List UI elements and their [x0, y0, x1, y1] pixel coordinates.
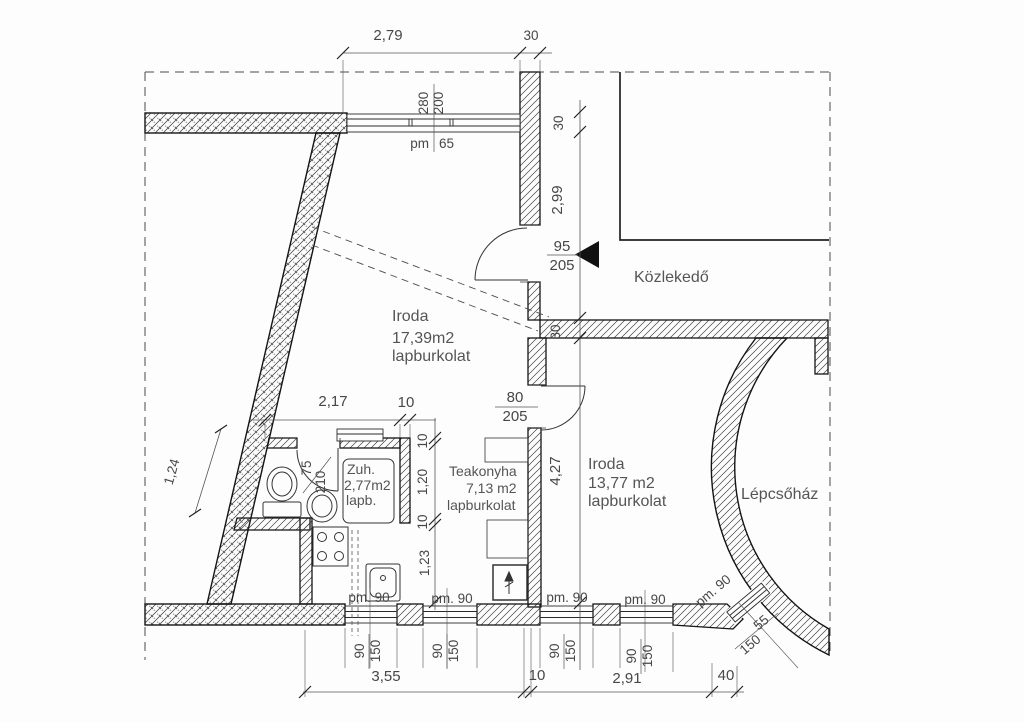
room-iroda1-area: 17,39m2: [392, 330, 454, 347]
room-zuh-area: 2,77m2: [344, 477, 391, 493]
dim-door2-h: 205: [502, 408, 527, 425]
dim-bath-width: 2,17: [318, 393, 347, 410]
dim-wintop-sill: 65: [439, 136, 454, 151]
dim-wintop-w: 280: [416, 92, 431, 115]
window-c: [540, 606, 593, 623]
room-label-iroda1: Iroda 17,39m2 lapburkolat: [392, 308, 471, 365]
dim-chain-123: 1,23: [417, 550, 432, 576]
dim-bottom-291: 2,91: [612, 670, 641, 687]
window-a: [345, 606, 397, 623]
dim-chain-10a: 10: [415, 433, 430, 448]
dim-bath-wall: 10: [398, 394, 415, 411]
window-d: [620, 606, 673, 623]
floorplan-drawing: 2,79 30 280 200 pm 65 30 2,99 95 205 30 …: [0, 0, 1024, 723]
stove: [313, 527, 348, 566]
corridor-opening-outline: [620, 72, 829, 240]
dim-right-wall-top: 30: [551, 115, 566, 130]
room-iroda2-floor: lapburkolat: [588, 493, 667, 510]
dim-wind-w: 90: [624, 648, 639, 663]
wall-corridor-return: [815, 338, 828, 374]
dim-winb-w: 90: [430, 643, 445, 658]
room-teakonyha-floor: lapburkolat: [447, 497, 516, 513]
dim-right-len2: 4,27: [547, 456, 564, 485]
dim-bottom-10: 10: [529, 667, 546, 684]
window-bath-small: [337, 429, 383, 441]
dim-bathdoor-w: 75: [299, 460, 314, 475]
wall-iroda2-lower: [528, 428, 541, 607]
room-label-lepcsohaz: Lépcsőház: [741, 486, 818, 503]
room-label-teakonyha: Teakonyha 7,13 m2 lapburkolat: [447, 463, 517, 513]
dim-wind-h: 150: [640, 645, 655, 668]
wall-pier-c: [477, 604, 540, 625]
wall-bath-partition: [400, 438, 410, 523]
dim-wine-w: 55: [751, 612, 772, 633]
dim-winc-w: 90: [547, 643, 562, 658]
wall-bottom-left: [145, 604, 345, 625]
room-label-iroda2: Iroda 13,77 m2 lapburkolat: [588, 456, 667, 510]
door-iroda2: [528, 385, 585, 430]
wall-right-below-door: [528, 282, 540, 320]
dim-top-wall: 30: [523, 28, 538, 43]
room-label-zuhanyzo: Zuh. 2,77m2 lapb.: [344, 461, 391, 508]
wall-bath-top-left: [267, 438, 297, 448]
dim-wina-h: 150: [368, 640, 383, 663]
shaft-box-arrow: [493, 565, 527, 600]
room-iroda2-name: Iroda: [588, 456, 625, 473]
room-label-kozlekedo: Közlekedő: [634, 269, 709, 286]
dim-right-wall-mid: 30: [548, 324, 563, 339]
boundary-dashed-lines: [145, 72, 830, 660]
dim-winc-pm: pm. 90: [546, 590, 587, 605]
dim-wind-pm: pm. 90: [624, 592, 665, 607]
wall-pier-b: [397, 604, 423, 625]
dim-right-len: 2,99: [549, 185, 566, 214]
room-zuh-floor: lapb.: [346, 492, 376, 508]
room-teakonyha-area: 7,13 m2: [466, 480, 517, 496]
dim-bathdoor-h: 210: [313, 471, 328, 494]
wall-bath-bottom: [234, 518, 310, 530]
dim-chain-10b: 10: [415, 514, 430, 529]
counter-top: [485, 438, 528, 462]
dim-top-width: 2,79: [373, 27, 402, 44]
dim-wina-w: 90: [352, 643, 367, 658]
window-top: [347, 114, 520, 132]
entrance-arrow-icon: [575, 241, 599, 268]
wall-right-top: [520, 72, 540, 225]
dim-entry-h: 205: [549, 257, 574, 274]
dim-winc-h: 150: [563, 640, 578, 663]
walls-existing: [145, 113, 347, 625]
wall-top: [145, 113, 347, 133]
room-teakonyha-name: Teakonyha: [449, 463, 517, 479]
wall-pier-d: [593, 604, 620, 625]
room-iroda1-name: Iroda: [392, 308, 429, 325]
bath-sink: [307, 490, 337, 522]
dim-entry-w: 95: [554, 238, 571, 255]
entry-door: [475, 225, 540, 282]
dim-wina-pm: pm. 90: [348, 590, 389, 605]
wall-iroda2-upper: [528, 338, 546, 385]
duct-dashed: [352, 530, 358, 636]
dim-wintop-pm: pm: [410, 136, 429, 151]
toilet: [263, 467, 301, 517]
beam-dashed-lines: [312, 227, 549, 331]
dim-bottom-355: 3,55: [371, 668, 400, 685]
dim-winb-pm: pm. 90: [431, 591, 472, 606]
room-iroda2-area: 13,77 m2: [588, 475, 655, 492]
dim-wintop-h: 200: [431, 92, 446, 115]
dim-door2-w: 80: [507, 389, 524, 406]
dim-wine-h: 150: [737, 632, 764, 658]
dim-bottom-40: 40: [718, 667, 735, 684]
room-iroda1-floor: lapburkolat: [392, 348, 471, 365]
wall-closet-right: [300, 518, 312, 604]
counter-mid: [487, 520, 528, 558]
room-zuh-name: Zuh.: [347, 461, 375, 477]
window-b: [423, 606, 477, 623]
floorplan-page: 2,79 30 280 200 pm 65 30 2,99 95 205 30 …: [0, 0, 1024, 723]
dim-chain-120: 1,20: [415, 469, 430, 495]
dim-diag-124: 1,24: [161, 457, 183, 487]
dim-winb-h: 150: [446, 640, 461, 663]
